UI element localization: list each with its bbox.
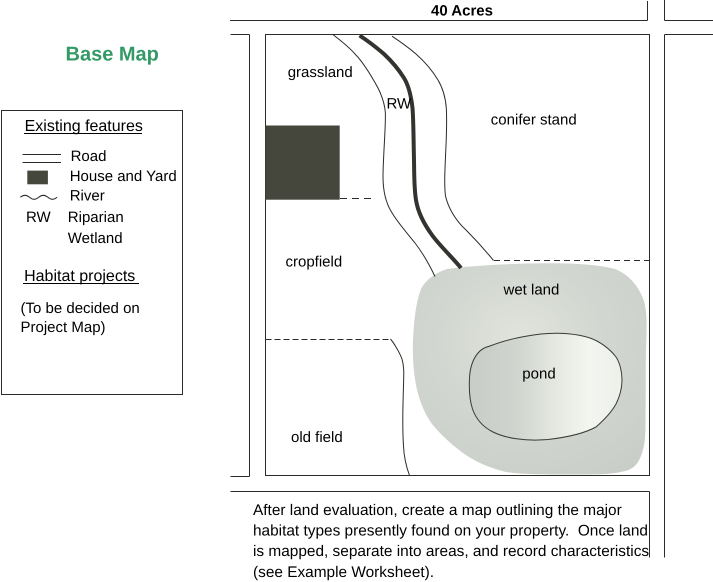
svg-text:Base Map: Base Map — [66, 43, 159, 65]
svg-text:Project Map): Project Map) — [21, 319, 106, 336]
svg-text:Riparian: Riparian — [68, 209, 124, 226]
svg-text:After land evaluation, create: After land evaluation, create a map outl… — [253, 502, 622, 519]
svg-text:habitat types presently found: habitat types presently found on your pr… — [253, 523, 648, 540]
svg-text:Existing features: Existing features — [25, 118, 143, 135]
svg-text:RW: RW — [26, 209, 52, 226]
svg-text:(To be decided on: (To be decided on — [21, 300, 140, 317]
svg-text:Road: Road — [71, 148, 107, 165]
svg-text:is mapped, separate into areas: is mapped, separate into areas, and reco… — [253, 543, 649, 560]
svg-text:(see Example Worksheet).: (see Example Worksheet). — [253, 564, 434, 581]
svg-text:40 Acres: 40 Acres — [431, 2, 493, 19]
svg-text:pond: pond — [522, 366, 555, 383]
svg-text:wet land: wet land — [503, 282, 560, 299]
svg-text:old field: old field — [291, 429, 343, 446]
svg-text:conifer stand: conifer stand — [491, 111, 577, 128]
svg-text:cropfield: cropfield — [286, 253, 343, 270]
svg-text:River: River — [70, 188, 105, 205]
svg-text:Habitat projects: Habitat projects — [24, 268, 135, 285]
svg-text:RW: RW — [387, 95, 413, 112]
svg-text:House and Yard: House and Yard — [70, 168, 177, 185]
svg-text:grassland: grassland — [288, 64, 353, 81]
svg-text:Wetland: Wetland — [68, 230, 123, 247]
